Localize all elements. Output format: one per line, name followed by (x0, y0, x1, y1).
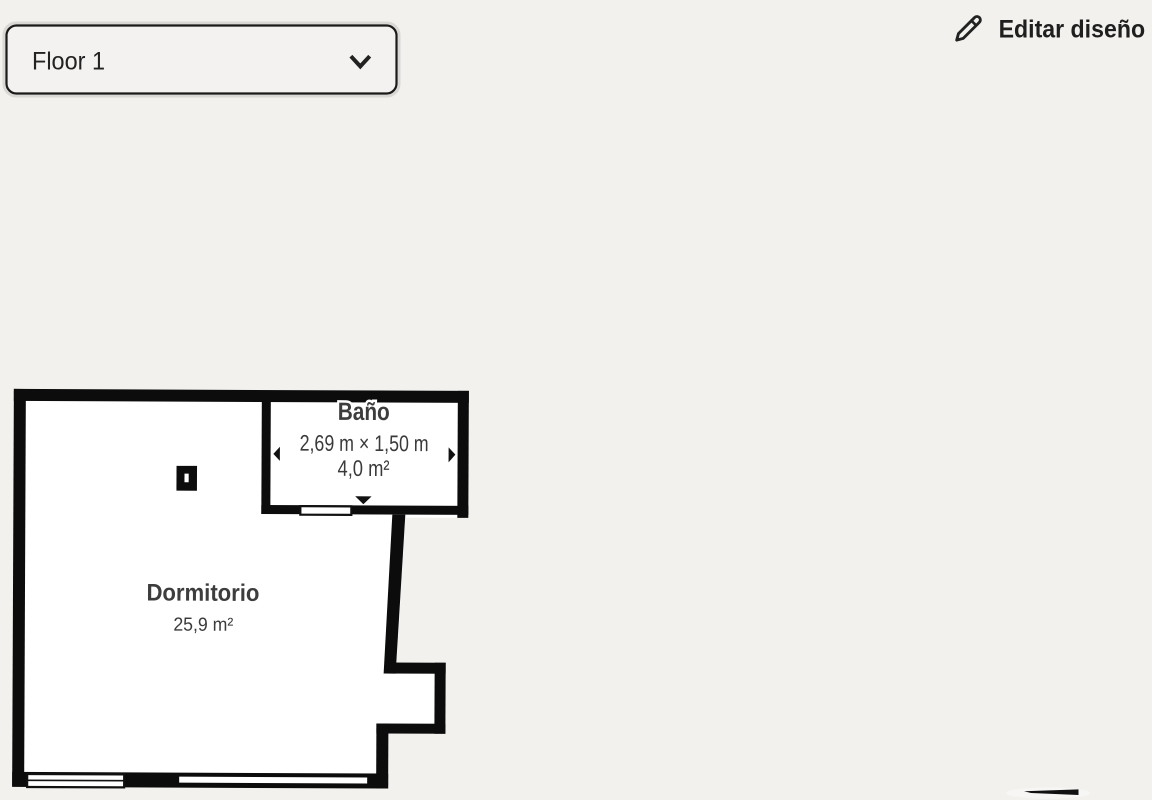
svg-text:4,0 m²: 4,0 m² (337, 456, 390, 481)
svg-text:2,69 m × 1,50 m: 2,69 m × 1,50 m (300, 431, 429, 457)
svg-text:Editar diseño: Editar diseño (999, 16, 1146, 44)
svg-text:Floor 1: Floor 1 (32, 48, 105, 76)
svg-text:Baño: Baño (338, 398, 390, 426)
svg-text:25,9 m²: 25,9 m² (173, 615, 233, 636)
svg-text:Dormitorio: Dormitorio (146, 579, 259, 606)
